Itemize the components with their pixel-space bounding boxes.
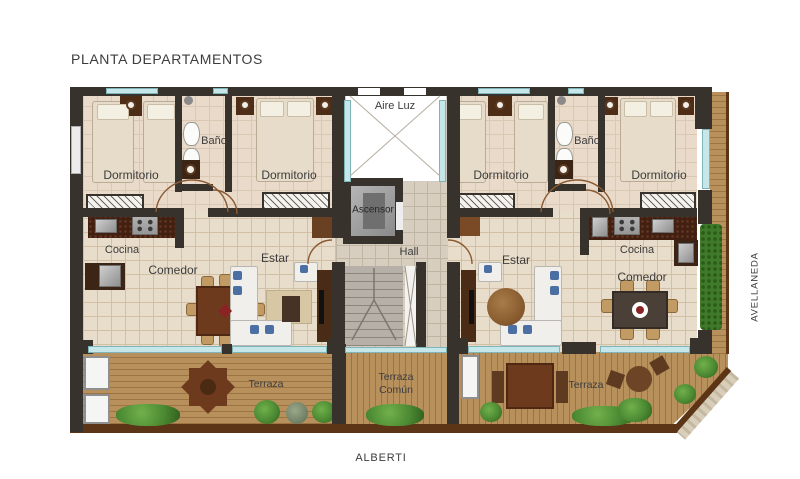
wall-mid-left-b [208, 208, 332, 217]
plant-icon [116, 404, 180, 426]
terrace-storage [461, 355, 479, 399]
plant-icon [694, 356, 718, 378]
lamp-icon [495, 100, 505, 110]
cooktop-icon [132, 216, 158, 235]
room-label-estar: Estar [502, 253, 530, 267]
window-airlight-left [344, 100, 351, 182]
window-terrace [88, 346, 222, 353]
lamp-icon [681, 100, 691, 110]
airlight-top-gap [404, 88, 426, 95]
tv-icon [469, 290, 474, 324]
window-top [478, 88, 530, 94]
room-label-dormitorio: Dormitorio [631, 168, 686, 182]
balcony-right-edge [726, 92, 729, 354]
cooktop-icon [614, 216, 640, 235]
room-label-terraza: Terraza [248, 378, 283, 390]
toilet-icon [556, 122, 573, 146]
wall-mid-left-a [83, 208, 175, 217]
lamp-icon [240, 100, 250, 110]
window-terrace [468, 346, 560, 353]
room-label-comedor: Comedor [148, 263, 197, 277]
street-label-alberti: ALBERTI [355, 452, 406, 464]
wall-divider-right-upper [447, 92, 460, 238]
sofa-pillow-icon [250, 325, 259, 334]
lamp-icon [605, 100, 615, 110]
wall-terrace-divider-left [332, 344, 346, 424]
entry-cabinet-icon [460, 214, 480, 236]
room-label-dormitorio: Dormitorio [103, 168, 158, 182]
window-top [213, 88, 228, 94]
terrace-table-icon [506, 363, 554, 409]
sofa-pillow-icon [300, 265, 308, 273]
plant-icon [480, 402, 502, 422]
window-airlight-right [439, 100, 446, 182]
wall-kitchen-stub-right [580, 208, 589, 255]
window-terrace [345, 347, 447, 353]
sofa-pillow-icon [484, 265, 492, 273]
kitchen-prep-icon [592, 217, 608, 237]
wall-bath-right-bottom [548, 184, 586, 191]
wall-right-mid [698, 190, 712, 224]
pillow-icon [260, 101, 284, 117]
terrace-bench-icon [492, 371, 504, 403]
kitchen-sink-icon [652, 219, 674, 233]
window-top [568, 88, 584, 94]
wall-bath-left-a [175, 92, 182, 192]
fridge-front [678, 243, 694, 263]
wall-right-top [695, 87, 712, 129]
sofa-pillow-icon [550, 271, 559, 280]
kitchen-sink-icon [95, 219, 117, 233]
terrace-table-center-icon [200, 379, 216, 395]
shower-icon [557, 96, 566, 105]
elevator-door-gap [396, 202, 403, 230]
wall-segment [562, 342, 596, 354]
room-label-cocina: Cocina [105, 244, 139, 256]
room-label-terraza: Terraza [568, 379, 603, 391]
sink-icon [185, 164, 196, 175]
lamp-icon [126, 100, 136, 110]
wall-top [70, 87, 712, 96]
plant-icon [286, 402, 308, 424]
room-label-terraza-comun: Terraza [378, 371, 413, 383]
room-label-bano: Baño [574, 135, 600, 147]
lamp-icon [320, 100, 330, 110]
terrace-storage [84, 394, 110, 424]
hedge-icon [700, 224, 722, 330]
airlight-top-gap [358, 88, 380, 95]
plant-icon [254, 400, 280, 424]
terrace-round-table-icon [626, 366, 652, 392]
wall-terrace-divider-right [447, 344, 459, 424]
room-label-aire-luz: Aire Luz [375, 100, 415, 112]
room-label-bano: Baño [201, 135, 227, 147]
wall-kitchen-stub-left [175, 208, 184, 248]
window-terrace [600, 346, 690, 353]
entry-cabinet-icon [312, 216, 332, 238]
wall-mid-right-b [582, 208, 697, 217]
wall-segment [690, 338, 706, 354]
tv-icon [319, 290, 324, 324]
plant-icon [618, 398, 652, 422]
pillow-icon [518, 104, 544, 120]
pillow-icon [147, 104, 175, 120]
terrace-bench-icon [556, 371, 568, 403]
terrace-storage [84, 356, 110, 390]
page-title: PLANTA DEPARTAMENTOS [71, 51, 263, 67]
sofa-pillow-icon [523, 325, 532, 334]
wall-stair-right [416, 262, 426, 350]
staircase [345, 266, 403, 346]
room-label-hall: Hall [400, 246, 419, 258]
floor-plan-page: { "title": "PLANTA DEPARTAMENTOS", "stre… [0, 0, 800, 479]
window-left-wall [71, 126, 81, 174]
pillow-icon [97, 104, 129, 120]
round-ottoman-icon [487, 288, 525, 326]
wall-bath-left-bottom [175, 184, 213, 191]
toilet-icon [183, 122, 200, 146]
wall-stair-left [337, 262, 345, 350]
wall-segment [222, 344, 232, 354]
window-top [106, 88, 158, 94]
pillow-icon [287, 101, 311, 117]
wall-bath-right-a [548, 92, 555, 192]
pillow-icon [650, 101, 673, 117]
room-label-terraza-comun: Común [379, 384, 413, 396]
room-label-comedor: Comedor [617, 270, 666, 284]
sink-icon [558, 164, 569, 175]
sofa-pillow-icon [233, 286, 242, 295]
street-label-avellaneda: AVELLANEDA [750, 252, 761, 322]
sofa-pillow-icon [508, 325, 517, 334]
pillow-icon [624, 101, 647, 117]
window-terrace [232, 346, 327, 353]
stair-railing [405, 266, 416, 346]
sofa-pillow-icon [233, 271, 242, 280]
shower-icon [184, 96, 193, 105]
plant-icon [366, 404, 424, 426]
window-right-wall [702, 129, 710, 189]
table-decor-icon [636, 306, 644, 314]
coffee-table-icon [282, 296, 300, 322]
fridge-front [99, 265, 121, 287]
sofa-pillow-icon [550, 286, 559, 295]
plant-icon [674, 384, 696, 404]
sofa-icon [230, 320, 292, 346]
room-label-dormitorio: Dormitorio [261, 168, 316, 182]
room-label-estar: Estar [261, 251, 289, 265]
room-label-dormitorio: Dormitorio [473, 168, 528, 182]
room-label-ascensor: Ascensor [352, 205, 394, 216]
wall-mid-right-a [460, 208, 553, 217]
pillow-icon [458, 104, 482, 120]
sofa-pillow-icon [265, 325, 274, 334]
room-label-cocina: Cocina [620, 244, 654, 256]
